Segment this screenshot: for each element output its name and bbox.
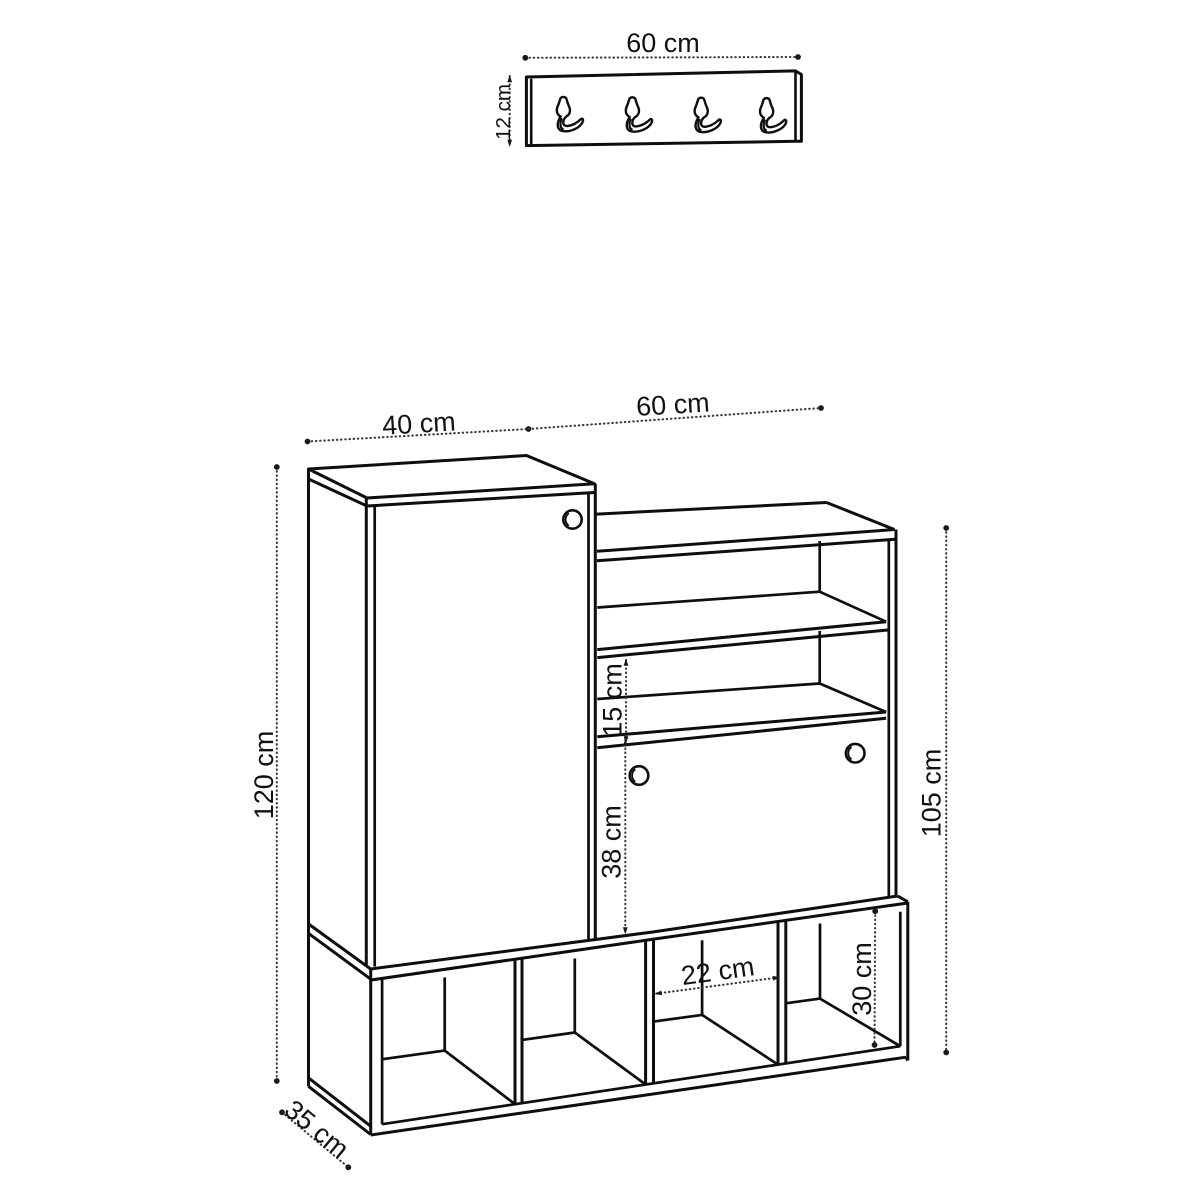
svg-text:15 cm: 15 cm xyxy=(598,663,628,737)
svg-text:60 cm: 60 cm xyxy=(626,28,700,58)
svg-text:40 cm: 40 cm xyxy=(381,406,456,440)
svg-text:60 cm: 60 cm xyxy=(635,387,710,421)
svg-text:38 cm: 38 cm xyxy=(597,805,627,879)
svg-text:12 cm: 12 cm xyxy=(492,84,515,140)
svg-text:30 cm: 30 cm xyxy=(847,942,877,1016)
svg-text:120 cm: 120 cm xyxy=(249,731,279,820)
svg-text:105 cm: 105 cm xyxy=(917,749,947,838)
